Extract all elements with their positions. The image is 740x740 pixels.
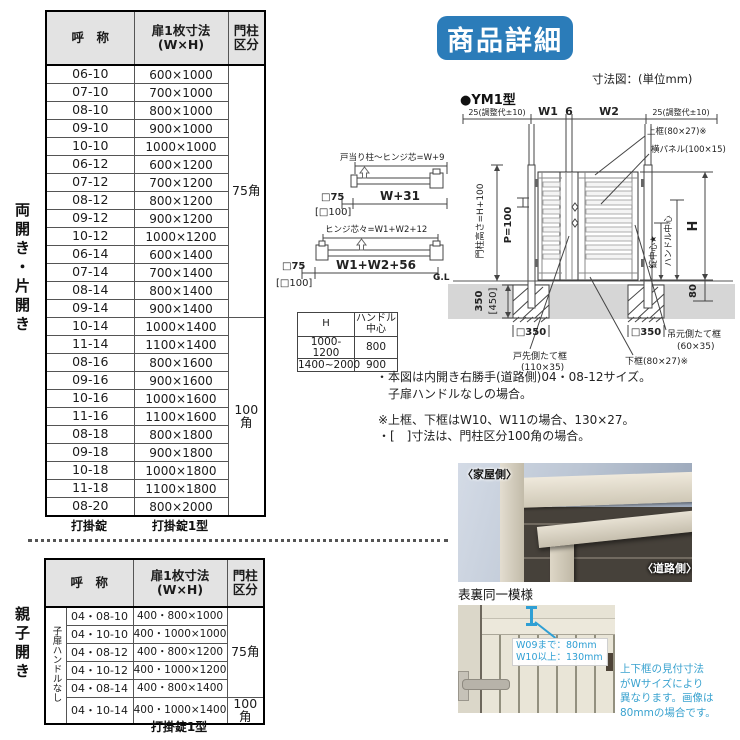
dotted-separator xyxy=(28,539,448,542)
gate-top-rail xyxy=(515,472,692,508)
col-header-size: 扉1枚寸法(W×H) xyxy=(133,559,227,607)
col-header-post: 門柱区分 xyxy=(227,559,264,607)
front-stile-label: 戸先側たて框 xyxy=(513,350,567,362)
side-label-oyako: 親子開き xyxy=(12,606,33,690)
note-line: 80mmの場合です。 xyxy=(620,706,710,721)
col-header-h: H xyxy=(298,313,355,337)
w1-dim: W1 xyxy=(538,105,558,118)
post-size-alt-label: [□100] xyxy=(276,278,312,289)
footing-left-dim: □350 xyxy=(516,327,546,338)
lock-type-label: 打掛錠1型 xyxy=(132,718,226,735)
lock-center-label: 錠中心★ xyxy=(648,235,659,269)
table-row: 子扉ハンドルなし 04・08-10400・800×1000 75角 xyxy=(45,607,264,626)
note-line: 子扉ハンドルなしの場合。 xyxy=(388,385,532,402)
col-header-name: 呼 称 xyxy=(46,11,134,65)
col-header-post: 門柱区分 xyxy=(228,11,265,65)
adj-left-dim: 25(調整代±10) xyxy=(468,107,525,117)
panel-label: 横パネル(100×15) xyxy=(651,144,726,155)
col-header-size: 扉1枚寸法(W×H) xyxy=(134,11,228,65)
post-group-75: 75角 xyxy=(227,607,264,698)
hinge-stile-label: 吊元側たて框 xyxy=(667,328,721,340)
handle-height-table: H ハンドル中心 1000-1200800 1400~2000900 xyxy=(297,312,398,372)
post-height-label: 門柱高さ=H+100 xyxy=(474,183,486,258)
lock-label: 打掛錠 xyxy=(45,517,133,534)
note-line: ※上框、下框はW10、W11の場合、130×27。 xyxy=(378,411,635,428)
page-title: 商品詳細 xyxy=(437,16,573,60)
product-detail-page: 両開き・片開き 親子開き 呼 称 扉1枚寸法(W×H) 門柱区分 06-1060… xyxy=(0,0,740,740)
gap-dim: 6 xyxy=(565,105,573,118)
callout-line: W10以上：130mm xyxy=(516,652,604,664)
ground-level-label: G.L xyxy=(433,273,450,283)
handle-center-label: ハンドル中心 xyxy=(663,215,674,267)
adj-right-dim: 25(調整代±10) xyxy=(652,107,709,117)
sub-label-no-handle: 子扉ハンドルなし xyxy=(45,607,66,724)
table-row: 06-10600×100075角 xyxy=(46,65,265,84)
hinge-stile-size: (60×35) xyxy=(677,342,714,352)
footing-right-dim: □350 xyxy=(631,327,661,338)
clearance-dim: 80 xyxy=(688,284,699,298)
spec-table-main: 呼 称 扉1枚寸法(W×H) 門柱区分 06-10600×100075角 07-… xyxy=(45,10,266,517)
note-line: ・[ ]寸法は、門柱区分100角の場合。 xyxy=(378,427,590,444)
table-row: 10-141000×1400100角 xyxy=(46,318,265,336)
height-dim: H xyxy=(686,221,701,232)
w1w2-dim: W1+W2+56 xyxy=(336,258,416,272)
w31-dim: W+31 xyxy=(380,189,420,203)
pitch-label: P=100 xyxy=(503,207,514,244)
depth-dim: 350 xyxy=(474,291,485,312)
col-header-name: 呼 称 xyxy=(45,559,133,607)
note-line: 上下框の見付寸法 xyxy=(620,662,710,677)
post-group-100: 100角 xyxy=(228,318,265,517)
post-size-label: □75 xyxy=(321,192,344,203)
dimension-marker-icon xyxy=(530,607,533,625)
w2-dim: W2 xyxy=(599,105,619,118)
note-line: がWサイズにより xyxy=(620,677,710,692)
road-side-label: 〈道路側〉 xyxy=(642,560,692,576)
post-group-100: 100角 xyxy=(227,698,264,725)
top-rail-label: 上框(80×27)※ xyxy=(647,126,707,137)
hinge-bottom-label: ヒンジ芯々=W1+W2+12 xyxy=(325,224,427,235)
frame-size-callout: W09まで：80mm W10以上：130mm xyxy=(512,638,608,666)
lock-type-label: 打掛錠1型 xyxy=(133,517,227,534)
bottom-rail-label: 下框(80×27)※ xyxy=(625,355,688,367)
elevation-diagram: 25(調整代±10) W1 6 W2 25(調整代±10) 上框(80×27)※… xyxy=(425,103,740,371)
depth-alt-dim: [450] xyxy=(488,287,499,314)
house-side-label: 〈家屋側〉 xyxy=(462,466,517,482)
gate-frame-photo: W09まで：80mm W10以上：130mm xyxy=(458,605,615,713)
callout-line: W09まで：80mm xyxy=(516,640,604,652)
col-header-handle: ハンドル中心 xyxy=(355,313,398,337)
gate-slats xyxy=(543,182,632,259)
lever-handle xyxy=(462,679,510,690)
table-row: 1000-1200800 xyxy=(298,337,398,359)
photo-caption: 表裏同一模様 xyxy=(458,584,533,603)
post-size-alt-label: [□100] xyxy=(315,207,351,218)
spec-table-oyako: 呼 称 扉1枚寸法(W×H) 門柱区分 子扉ハンドルなし 04・08-10400… xyxy=(44,558,265,725)
side-label-double-single: 両開き・片開き xyxy=(12,202,33,352)
note-line: ・本図は内開き右勝手(道路側)04・08-12サイズ。 xyxy=(376,368,651,385)
gate-pattern-photo: 〈家屋側〉 〈道路側〉 xyxy=(458,463,692,582)
frame-size-note: 上下框の見付寸法 がWサイズにより 異なります。画像は 80mmの場合です。 xyxy=(620,662,710,720)
note-line: 異なります。画像は xyxy=(620,691,710,706)
post-group-75: 75角 xyxy=(228,65,265,318)
scale-note: 寸法図：(単位mm) xyxy=(592,71,692,87)
post-size-label: □75 xyxy=(282,261,305,272)
